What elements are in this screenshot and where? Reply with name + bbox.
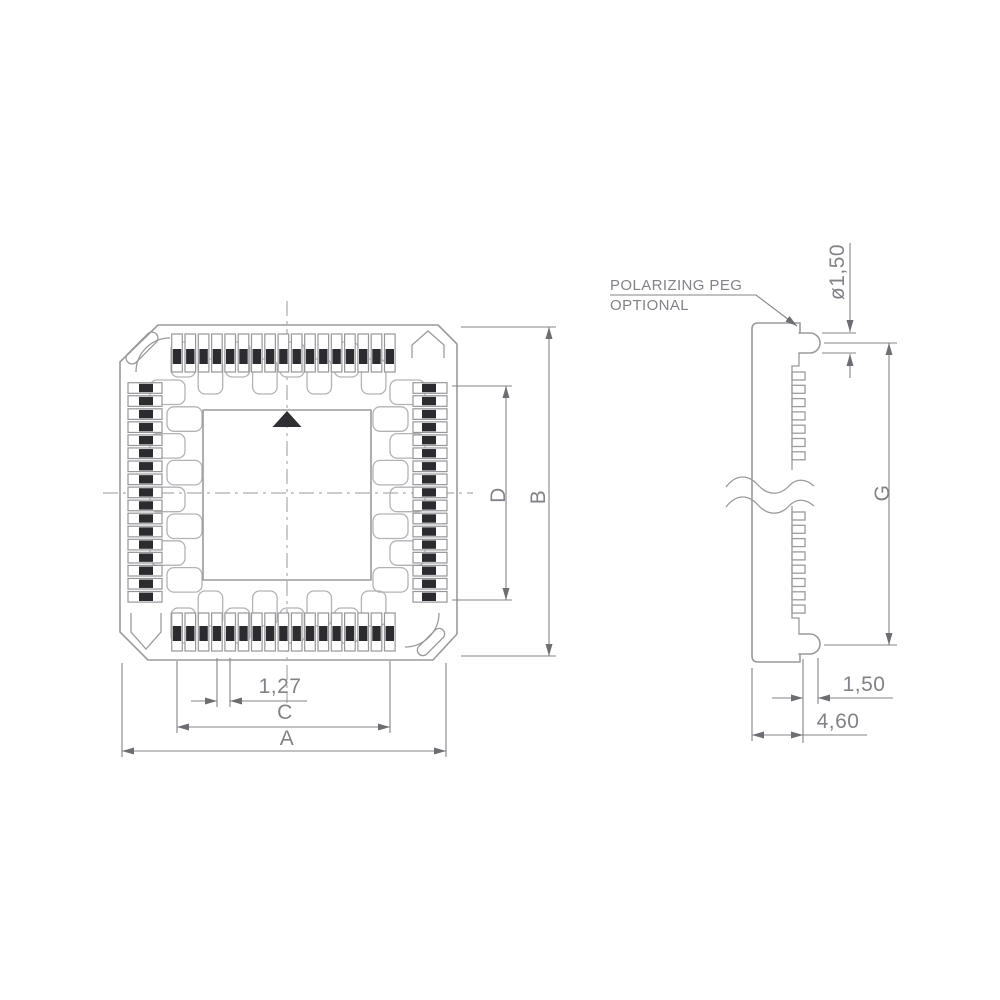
dim-label-A: A (280, 727, 295, 750)
side-contact-tooth (792, 579, 805, 587)
contact-left (139, 567, 153, 575)
dim-label-G: G (871, 485, 894, 502)
corner-slot-bottom-right (415, 626, 447, 658)
contact-bottom (386, 626, 394, 641)
side-contact-tooth (792, 525, 805, 533)
contact-right (422, 580, 436, 588)
cavity-left (167, 514, 202, 539)
plcc-socket-drawing: D B 1,27 C A (0, 0, 1000, 1000)
side-contact-tooth (792, 565, 805, 573)
contact-top (239, 349, 247, 364)
contact-top (293, 349, 301, 364)
contact-top (346, 349, 354, 364)
dimension-peg-diameter: ø1,50 (822, 243, 856, 378)
contact-bottom (253, 626, 261, 641)
corner-slot-top-left (124, 330, 161, 367)
contact-right (422, 436, 436, 444)
contact-teeth (792, 372, 805, 613)
side-contact-tooth (792, 425, 805, 433)
contact-left (139, 475, 153, 483)
contact-right (422, 488, 436, 496)
cavity-right (373, 460, 408, 485)
contact-left (139, 514, 153, 522)
side-contact-tooth (792, 605, 805, 613)
contact-left (139, 580, 153, 588)
polarizing-peg-top (799, 333, 820, 353)
dim-label-pitch: 1,27 (259, 675, 302, 698)
contact-bottom (266, 626, 274, 641)
inner-corner-arc-bottom-right (405, 613, 439, 647)
contact-top (199, 349, 207, 364)
cavity-right (373, 568, 408, 593)
dimension-pitch: 1,27 (191, 658, 307, 707)
contact-top (386, 349, 394, 364)
side-contact-tooth (792, 385, 805, 393)
contact-bottom (199, 626, 207, 641)
contact-bottom (279, 626, 287, 641)
contact-right (422, 410, 436, 418)
contact-right (422, 567, 436, 575)
cavity-left (167, 460, 202, 485)
cavity-left (167, 407, 202, 432)
polarizing-peg-bottom (799, 634, 820, 654)
contact-left (139, 423, 153, 431)
note-line-2: OPTIONAL (610, 297, 689, 314)
contact-left (139, 527, 153, 535)
contact-top (332, 349, 340, 364)
top-view: D B 1,27 C A (103, 301, 556, 757)
side-contact-tooth (792, 452, 805, 460)
contact-left (139, 410, 153, 418)
contact-right (422, 475, 436, 483)
corner-chevron-bottom-left (131, 613, 161, 649)
contact-right (422, 540, 436, 548)
contact-bottom (359, 626, 367, 641)
dim-label-B: B (527, 490, 550, 505)
contact-bottom (346, 626, 354, 641)
contact-bottom (306, 626, 314, 641)
contact-left (139, 397, 153, 405)
contact-left (139, 462, 153, 470)
contact-top (186, 349, 194, 364)
contact-top (279, 349, 287, 364)
contact-left (139, 436, 153, 444)
contact-right (422, 384, 436, 392)
contact-bottom (226, 626, 234, 641)
contact-left (139, 488, 153, 496)
technical-drawing-page: D B 1,27 C A (0, 0, 1000, 1000)
contact-left (139, 593, 153, 601)
contact-bottom (239, 626, 247, 641)
contact-top (226, 349, 234, 364)
dim-label-peg-width: 1,50 (843, 673, 886, 696)
contact-left (139, 384, 153, 392)
side-contact-tooth (792, 372, 805, 380)
contact-top (306, 349, 314, 364)
contact-left (139, 540, 153, 548)
break-line-lower (726, 497, 814, 513)
contact-bottom (332, 626, 340, 641)
contact-right (422, 397, 436, 405)
side-contact-tooth (792, 439, 805, 447)
note-line-1: POLARIZING PEG (610, 277, 742, 294)
contact-right (422, 553, 436, 561)
cavity-left (167, 568, 202, 593)
contact-bottom (173, 626, 181, 641)
side-contact-tooth (792, 592, 805, 600)
dim-label-peg-offset: 4,60 (817, 710, 860, 733)
contact-top (319, 349, 327, 364)
cavity-right (373, 514, 408, 539)
cavity-right (373, 407, 408, 432)
dim-label-D: D (487, 487, 510, 503)
contact-top (266, 349, 274, 364)
contact-right (422, 423, 436, 431)
dim-label-peg-diameter: ø1,50 (826, 244, 849, 300)
contact-right (422, 501, 436, 509)
contact-bottom (213, 626, 221, 641)
side-contact-tooth (792, 512, 805, 520)
side-contact-tooth (792, 539, 805, 547)
contact-top (359, 349, 367, 364)
side-contact-tooth (792, 412, 805, 420)
contact-left (139, 553, 153, 561)
polarizing-peg-note: POLARIZING PEG OPTIONAL (610, 277, 797, 326)
side-contact-tooth (792, 552, 805, 560)
dim-label-C: C (277, 701, 293, 724)
inner-corner-arc-top-left (136, 338, 170, 372)
dimension-G: G (824, 343, 897, 645)
contact-right (422, 449, 436, 457)
pin1-indicator-triangle (273, 411, 302, 427)
side-contact-tooth (792, 399, 805, 407)
contact-bottom (186, 626, 194, 641)
contact-top (372, 349, 380, 364)
contact-right (422, 462, 436, 470)
contact-top (253, 349, 261, 364)
contact-right (422, 527, 436, 535)
contact-left (139, 501, 153, 509)
break-line-upper (726, 477, 814, 493)
contact-bottom (319, 626, 327, 641)
corner-chevron-top-right (412, 331, 444, 358)
contact-left (139, 449, 153, 457)
contact-bottom (372, 626, 380, 641)
contact-bottom (293, 626, 301, 641)
contact-top (173, 349, 181, 364)
contact-top (213, 349, 221, 364)
contact-right (422, 514, 436, 522)
contact-right (422, 593, 436, 601)
side-view: POLARIZING PEG OPTIONAL ø1,50 G 1,50 (610, 243, 897, 743)
